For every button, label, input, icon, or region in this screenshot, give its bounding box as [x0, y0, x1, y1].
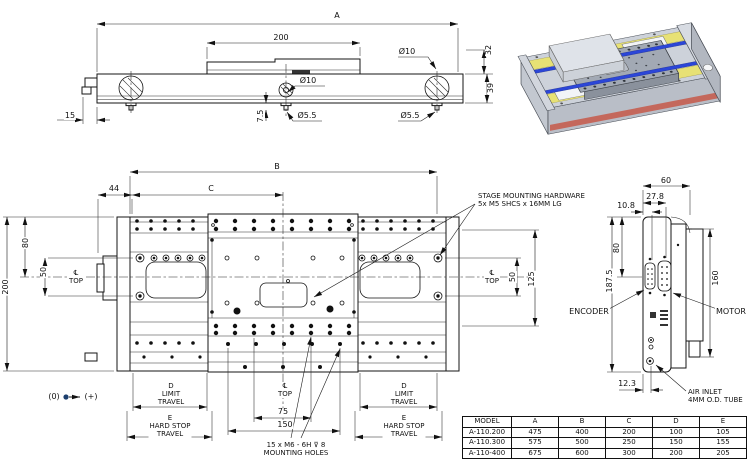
- table-cell: 575: [512, 438, 559, 449]
- table-header-model: MODEL: [463, 417, 512, 428]
- table-cell-model: A-110-400: [463, 448, 512, 459]
- dim-12-3: 12.3: [617, 380, 637, 388]
- table-cell: 200: [653, 448, 700, 459]
- table-row: A-110.300 575 500 250 150 155: [463, 438, 747, 449]
- table-cell: 250: [606, 438, 653, 449]
- table-cell: 105: [700, 427, 747, 438]
- dim-125: 125: [528, 270, 536, 287]
- table-cell: 475: [512, 427, 559, 438]
- table-cell: 400: [559, 427, 606, 438]
- dim-44: 44: [108, 185, 120, 193]
- encoder-label: ENCODER: [568, 308, 610, 316]
- dim-dia5-5-mid: Ø5.5: [296, 112, 317, 120]
- centerline-label-left: ℄ TOP: [68, 269, 84, 285]
- dim-160: 160: [712, 269, 720, 286]
- table-cell: 200: [606, 427, 653, 438]
- table-header-c: C: [606, 417, 653, 428]
- d-limit-travel-right: D LIMIT TRAVEL: [390, 382, 418, 406]
- table-cell: 600: [559, 448, 606, 459]
- table-cell: 500: [559, 438, 606, 449]
- dim-187-5: 187.5: [606, 269, 614, 294]
- dim-75: 75: [277, 408, 289, 416]
- table-cell: 100: [653, 427, 700, 438]
- mounting-holes-note: 15 x M6 - 6H ⊽ 8 MOUNTING HOLES: [263, 441, 330, 457]
- table-cell: 300: [606, 448, 653, 459]
- centerline-label-bottom: ℄ TOP: [277, 382, 293, 398]
- dim-50-right: 50: [509, 271, 517, 283]
- table-header-a: A: [512, 417, 559, 428]
- dim-c: C: [207, 185, 215, 193]
- table-header-e: E: [700, 417, 747, 428]
- dim-27-8: 27.8: [645, 193, 665, 201]
- dim-dia10-top: Ø10: [398, 48, 416, 56]
- table-cell: 205: [700, 448, 747, 459]
- table-cell-model: A-110.200: [463, 427, 512, 438]
- dim-200-side: 200: [272, 34, 289, 42]
- d-limit-travel-left: D LIMIT TRAVEL: [157, 382, 185, 406]
- dim-150: 150: [276, 421, 293, 429]
- table-row: A-110.200 475 400 200 100 105: [463, 427, 747, 438]
- dim-32: 32: [485, 44, 493, 56]
- table-header-d: D: [653, 417, 700, 428]
- drawing-linework: [0, 0, 750, 461]
- dim-50-left: 50: [40, 266, 48, 278]
- motor-label: MOTOR: [715, 308, 747, 316]
- dim-7-5: 7.5: [257, 109, 265, 124]
- dim-200-top: 200: [2, 278, 10, 295]
- iso-view: [505, 19, 733, 136]
- dim-dia5-5-right: Ø5.5: [399, 112, 420, 120]
- stage-mounting-note: STAGE MOUNTING HARDWARE 5x M5 SHCS x 16M…: [477, 192, 586, 208]
- table-cell: 155: [700, 438, 747, 449]
- table-cell: 150: [653, 438, 700, 449]
- table-header-row: MODEL A B C D E: [463, 417, 747, 428]
- dim-60: 60: [660, 177, 672, 185]
- end-view-drawing: [607, 186, 717, 393]
- technical-drawing-page: { "side_view": { "a": "A", "len_200": "2…: [0, 0, 750, 461]
- e-hardstop-travel-right: E HARD STOP TRAVEL: [383, 414, 426, 438]
- table-header-b: B: [559, 417, 606, 428]
- dim-10-8: 10.8: [616, 202, 636, 210]
- dim-b: B: [273, 163, 281, 171]
- origin-zero-label: (0): [47, 393, 60, 401]
- model-table: MODEL A B C D E A-110.200 475 400 200 10…: [462, 416, 747, 459]
- table-cell-model: A-110.300: [463, 438, 512, 449]
- dim-80-top: 80: [22, 237, 30, 249]
- dim-80-end: 80: [613, 242, 621, 254]
- dim-dia10-mid: Ø10: [299, 77, 317, 85]
- table-cell: 675: [512, 448, 559, 459]
- origin-plus-label: (+): [84, 393, 99, 401]
- dim-39: 39: [487, 82, 495, 94]
- dim-a: A: [333, 12, 340, 20]
- e-hardstop-travel-left: E HARD STOP TRAVEL: [149, 414, 192, 438]
- air-inlet-note: AIR INLET 4MM O.D. TUBE: [687, 388, 744, 404]
- dim-15: 15: [64, 112, 76, 120]
- table-row: A-110-400 675 600 300 200 205: [463, 448, 747, 459]
- centerline-label-right: ℄ TOP: [484, 269, 500, 285]
